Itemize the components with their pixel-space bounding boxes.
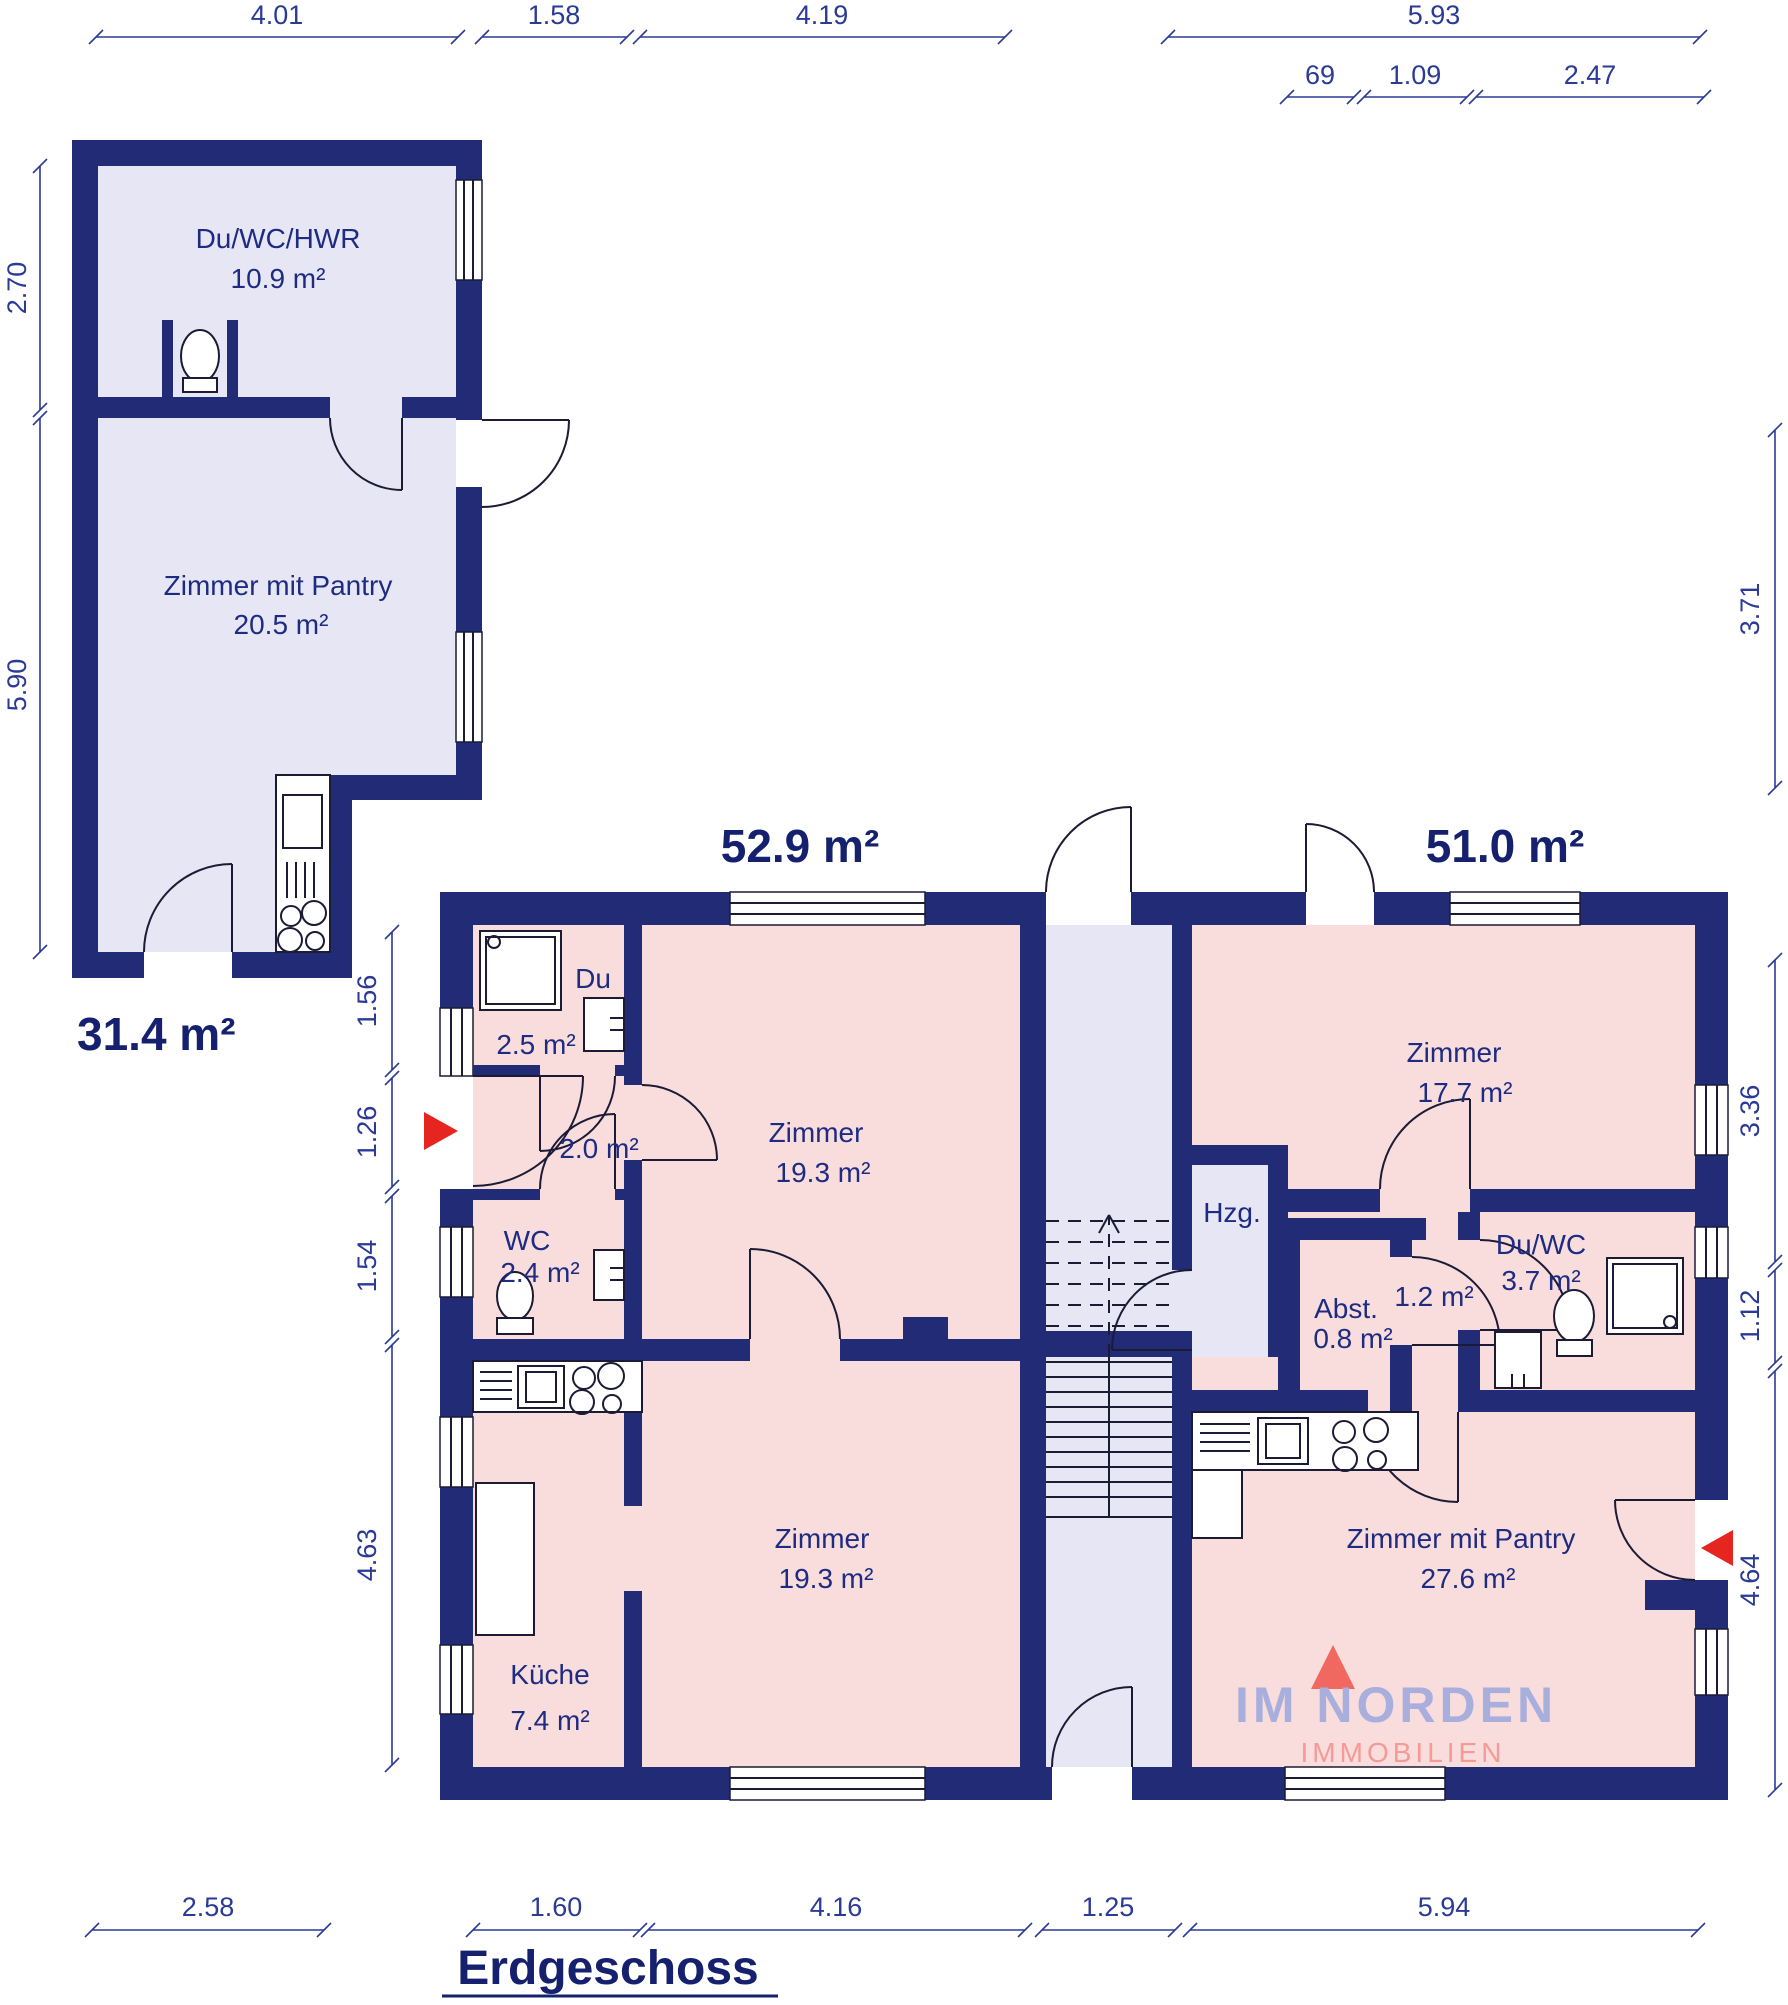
dimension-value: 4.16 (810, 1892, 863, 1922)
room-area: 10.9 m² (231, 263, 326, 294)
wall (624, 925, 642, 1085)
wall (624, 1591, 642, 1767)
dimension-value: 5.94 (1418, 1892, 1471, 1922)
dimension-value: 1.25 (1082, 1892, 1135, 1922)
dimension-line: 4.16 (641, 1892, 1032, 1937)
window (1695, 1629, 1728, 1695)
wall (1695, 1155, 1728, 1227)
room-area: 2.5 m² (496, 1029, 575, 1060)
window (456, 180, 482, 280)
wall (1278, 1218, 1426, 1240)
room-area: 20.5 m² (234, 609, 329, 640)
room-label: Du/WC/HWR (196, 223, 361, 254)
dimension-line: 3.71 (1735, 423, 1782, 795)
dimension-line: 1.60 (466, 1892, 647, 1937)
floor-plan-page: Du/WC/HWR 10.9 m² Zimmer mit Pantry 20.5… (0, 0, 1788, 2000)
wall (402, 397, 456, 418)
sink-icon (1495, 1332, 1541, 1388)
wall (72, 952, 144, 978)
room-area: 19.3 m² (779, 1563, 874, 1594)
dimension-line: 1.09 (1357, 60, 1474, 104)
wall (473, 1339, 750, 1361)
room-area: 2.4 m² (500, 1257, 579, 1288)
room-label: Zimmer mit Pantry (1347, 1523, 1576, 1554)
dimension-line: 2.58 (85, 1892, 331, 1937)
room-label: Du (575, 963, 611, 994)
sink-icon (584, 998, 624, 1051)
wall (440, 1189, 473, 1227)
dimension-line: 5.90 (2, 411, 47, 959)
wall (440, 1767, 730, 1800)
room-area: 19.3 m² (776, 1157, 871, 1188)
room-area: 1.2 m² (1394, 1281, 1473, 1312)
room-label: Hzg. (1203, 1197, 1261, 1228)
unit-total-area: 31.4 m² (77, 1008, 236, 1060)
dimension-line: 4.01 (89, 0, 465, 44)
wall (1172, 1350, 1192, 1767)
window (1285, 1767, 1445, 1800)
room-area: 27.6 m² (1421, 1563, 1516, 1594)
wall (615, 1065, 624, 1076)
window (440, 1227, 473, 1297)
wall (615, 1189, 624, 1200)
dimension-value: 2.47 (1564, 60, 1617, 90)
wall (925, 1767, 1052, 1800)
wall (1695, 1695, 1728, 1800)
dimension-value: 1.26 (352, 1106, 382, 1159)
logo-subtitle: IMMOBILIEN (1301, 1737, 1506, 1768)
wall (473, 1065, 540, 1076)
wall (1374, 892, 1450, 925)
dimension-value: 1.60 (530, 1892, 583, 1922)
room-label: Zimmer mit Pantry (164, 570, 393, 601)
wall (440, 1487, 473, 1645)
wall (456, 487, 482, 632)
floor-plan-drawing: Du/WC/HWR 10.9 m² Zimmer mit Pantry 20.5… (0, 0, 1788, 2000)
dimension-line: 1.25 (1035, 1892, 1182, 1937)
dimension-line: 5.94 (1183, 1892, 1705, 1937)
dimension-value: 4.64 (1735, 1554, 1765, 1607)
wall (1695, 1580, 1728, 1629)
room-area: 7.4 m² (510, 1705, 589, 1736)
window (1695, 1227, 1728, 1278)
wall (72, 140, 482, 166)
dimension-value: 3.36 (1735, 1085, 1765, 1138)
dimension-line: 2.70 (2, 159, 47, 417)
room-area: 2.0 m² (559, 1133, 638, 1164)
wall (440, 1297, 473, 1417)
dimension-line: 1.26 (352, 1071, 399, 1194)
dimension-value: 2.58 (182, 1892, 235, 1922)
entrance-arrow-right-icon (1701, 1530, 1733, 1566)
wall (72, 140, 98, 978)
wall (98, 397, 330, 418)
dimension-value: 69 (1305, 60, 1335, 90)
wall (456, 280, 482, 420)
wall (232, 952, 352, 978)
entrance-arrow-left-icon (424, 1112, 458, 1150)
door-arc (482, 420, 569, 507)
page-title: Erdgeschoss (457, 1942, 758, 1995)
dimension-value: 3.71 (1735, 583, 1765, 636)
dimension-line: 1.56 (352, 925, 399, 1077)
dimension-line: 69 (1280, 60, 1361, 104)
wall (1020, 1331, 1192, 1357)
wall (1445, 1767, 1728, 1800)
main-building: Du 2.5 m² 2.0 m² WC 2.4 m² Zimmer 19.3 m… (424, 807, 1733, 1800)
dimension-line: 1.58 (475, 0, 634, 44)
wall (1695, 1278, 1728, 1500)
window (440, 1417, 473, 1487)
wall (1458, 1212, 1480, 1240)
dimension-line: 4.64 (1735, 1364, 1782, 1797)
dimension-line: 1.54 (352, 1189, 399, 1344)
dimension-line: 4.19 (633, 0, 1012, 44)
wall (1131, 892, 1306, 925)
wall (1458, 1330, 1480, 1390)
window (440, 1008, 473, 1076)
dimension-value: 1.12 (1735, 1290, 1765, 1343)
dimension-value: 1.54 (352, 1240, 382, 1293)
wall (440, 1714, 473, 1800)
room-label: Abst. (1314, 1293, 1378, 1324)
shower-icon (1607, 1258, 1683, 1334)
room-label: Zimmer (1407, 1037, 1502, 1068)
wall (1645, 1580, 1695, 1610)
wall (1390, 1240, 1412, 1257)
dimension-value: 5.93 (1408, 0, 1461, 30)
sink-icon (594, 1250, 624, 1300)
room-area: 3.7 m² (1501, 1265, 1580, 1296)
window (730, 1767, 925, 1800)
wall (624, 1200, 642, 1339)
apartment-total-area: 51.0 m² (1426, 820, 1585, 872)
kitchenette-icon (276, 775, 330, 952)
apartment-total-area: 52.9 m² (721, 820, 880, 872)
dimension-line: 2.47 (1469, 60, 1711, 104)
wall (925, 892, 1046, 925)
dimension-value: 1.56 (352, 975, 382, 1028)
wall (624, 1160, 642, 1200)
window (730, 892, 925, 925)
room-label: Küche (510, 1659, 589, 1690)
room-area: 0.8 m² (1313, 1323, 1392, 1354)
dimension-value: 1.09 (1389, 60, 1442, 90)
room-label: WC (504, 1225, 551, 1256)
room-label: Zimmer (769, 1117, 864, 1148)
wall (840, 1339, 1020, 1361)
window (456, 632, 482, 742)
wall (440, 892, 730, 925)
dimension-value: 4.01 (251, 0, 304, 30)
wall (1390, 1345, 1412, 1412)
wall (1470, 1189, 1695, 1212)
window (1450, 892, 1580, 925)
dimension-value: 5.90 (2, 659, 32, 712)
door-arc (1306, 824, 1374, 892)
plan-title: Erdgeschoss (442, 1942, 778, 1996)
toilet-icon (1554, 1290, 1594, 1356)
room-label: Zimmer (775, 1523, 870, 1554)
dimension-line: 5.93 (1161, 0, 1707, 44)
logo-name: IM NORDEN (1235, 1677, 1557, 1733)
window (1695, 1085, 1728, 1155)
dimension-line: 3.36 (1735, 953, 1782, 1269)
shower-icon (480, 931, 561, 1010)
kitchen-counter-icon (473, 1361, 642, 1414)
wall (1695, 892, 1728, 1085)
wall (1278, 1218, 1300, 1412)
dimension-value: 4.19 (796, 0, 849, 30)
wall (1268, 1189, 1380, 1212)
wall (1132, 1767, 1285, 1800)
wall (903, 1317, 948, 1339)
room-area: 17.7 m² (1418, 1077, 1513, 1108)
dimension-line: 1.12 (1735, 1263, 1782, 1370)
wall (1172, 925, 1192, 1270)
dimension-value: 2.70 (2, 262, 32, 315)
door-arc (1046, 807, 1131, 892)
dimension-line: 4.63 (352, 1338, 399, 1772)
dimension-value: 4.63 (352, 1529, 382, 1582)
room-label: Du/WC (1496, 1229, 1586, 1260)
wall (1458, 1390, 1695, 1412)
wall (473, 1189, 540, 1200)
wall (456, 140, 482, 180)
counter-icon (476, 1483, 534, 1635)
wall (1192, 1390, 1368, 1412)
wall (440, 892, 473, 1008)
window (440, 1645, 473, 1714)
dimension-value: 1.58 (528, 0, 581, 30)
